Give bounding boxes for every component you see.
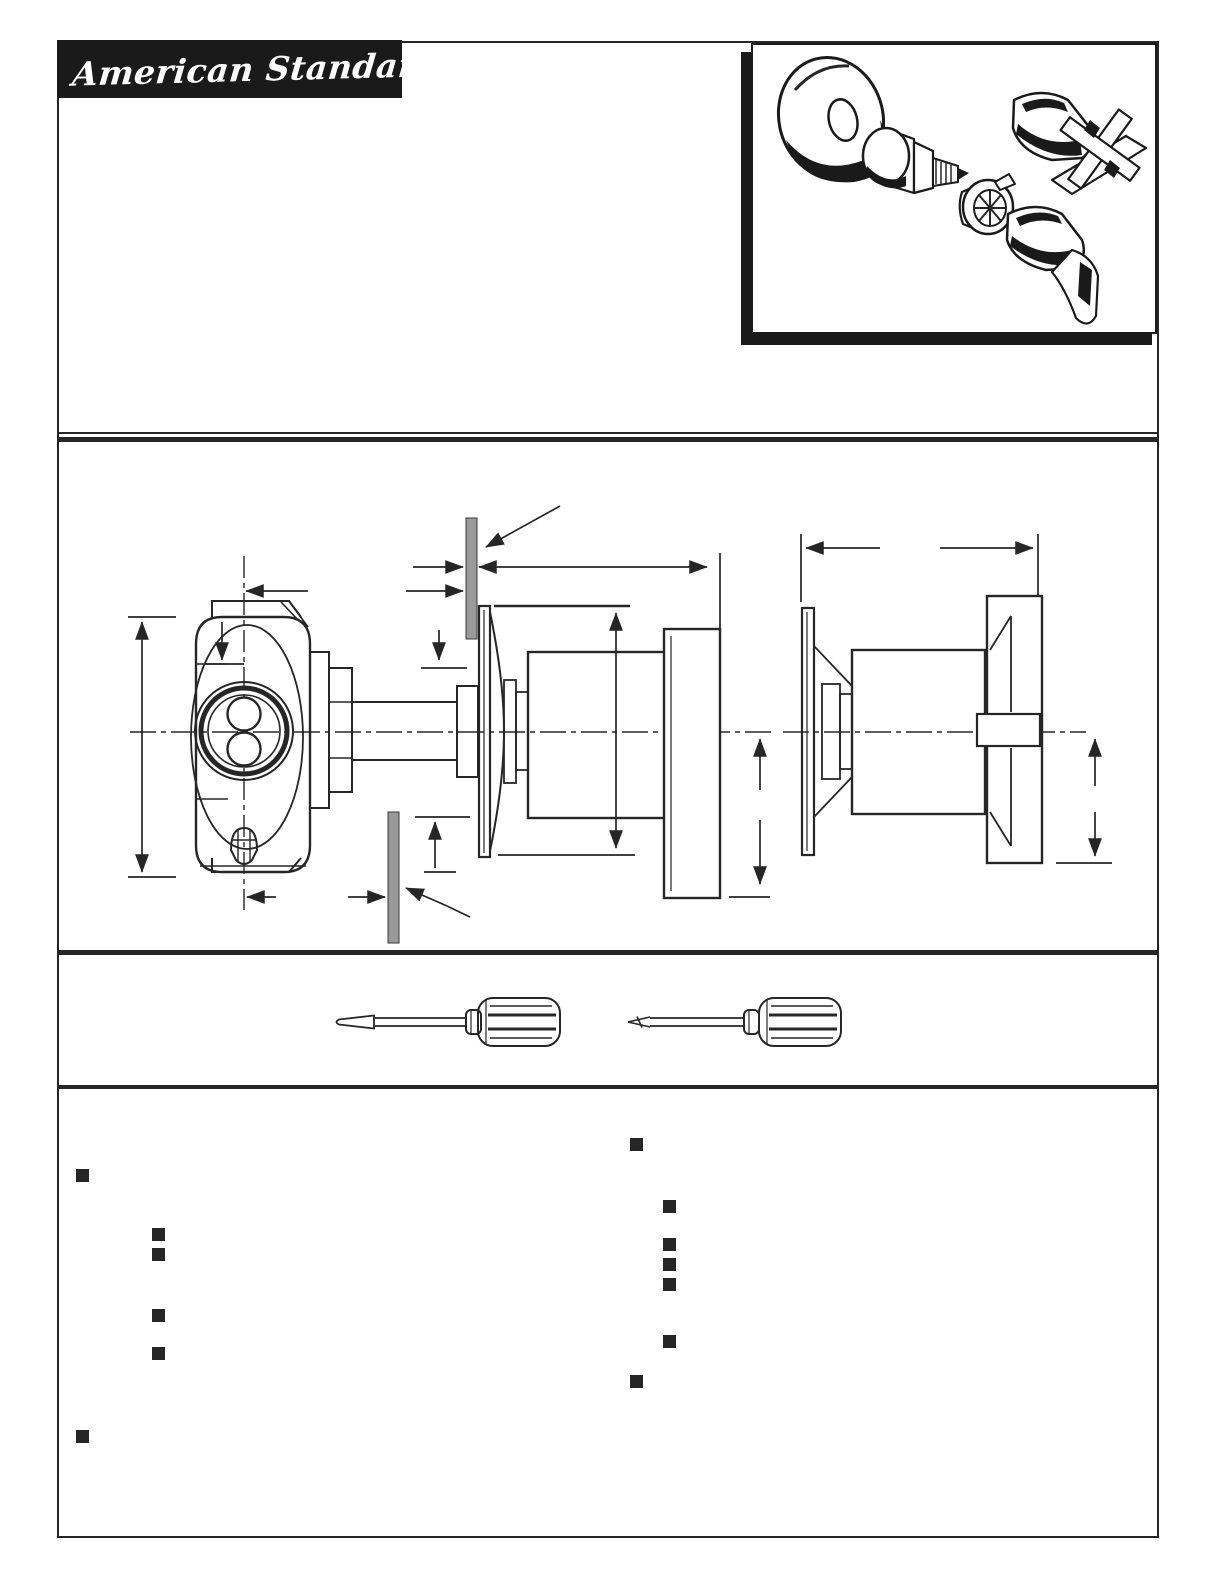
bullet-square-left-column-5 [152, 1347, 165, 1360]
bullet-square-right-column-1 [630, 1138, 643, 1151]
bullet-square-right-column-3 [663, 1238, 676, 1251]
bullet-square-right-column-6 [663, 1335, 676, 1348]
bullet-square-left-column-6 [76, 1430, 89, 1443]
bullet-square-right-column-7 [630, 1375, 643, 1388]
bullet-square-right-column-5 [663, 1278, 676, 1291]
installation-notes [0, 0, 1224, 1584]
bullet-square-left-column-2 [152, 1228, 165, 1241]
bullet-square-left-column-4 [152, 1309, 165, 1322]
spec-sheet-page: American Standard [0, 0, 1224, 1584]
bullet-square-left-column-3 [152, 1248, 165, 1261]
bullet-square-left-column-1 [76, 1169, 89, 1182]
bullet-square-right-column-4 [663, 1258, 676, 1271]
bullet-square-right-column-2 [663, 1200, 676, 1213]
